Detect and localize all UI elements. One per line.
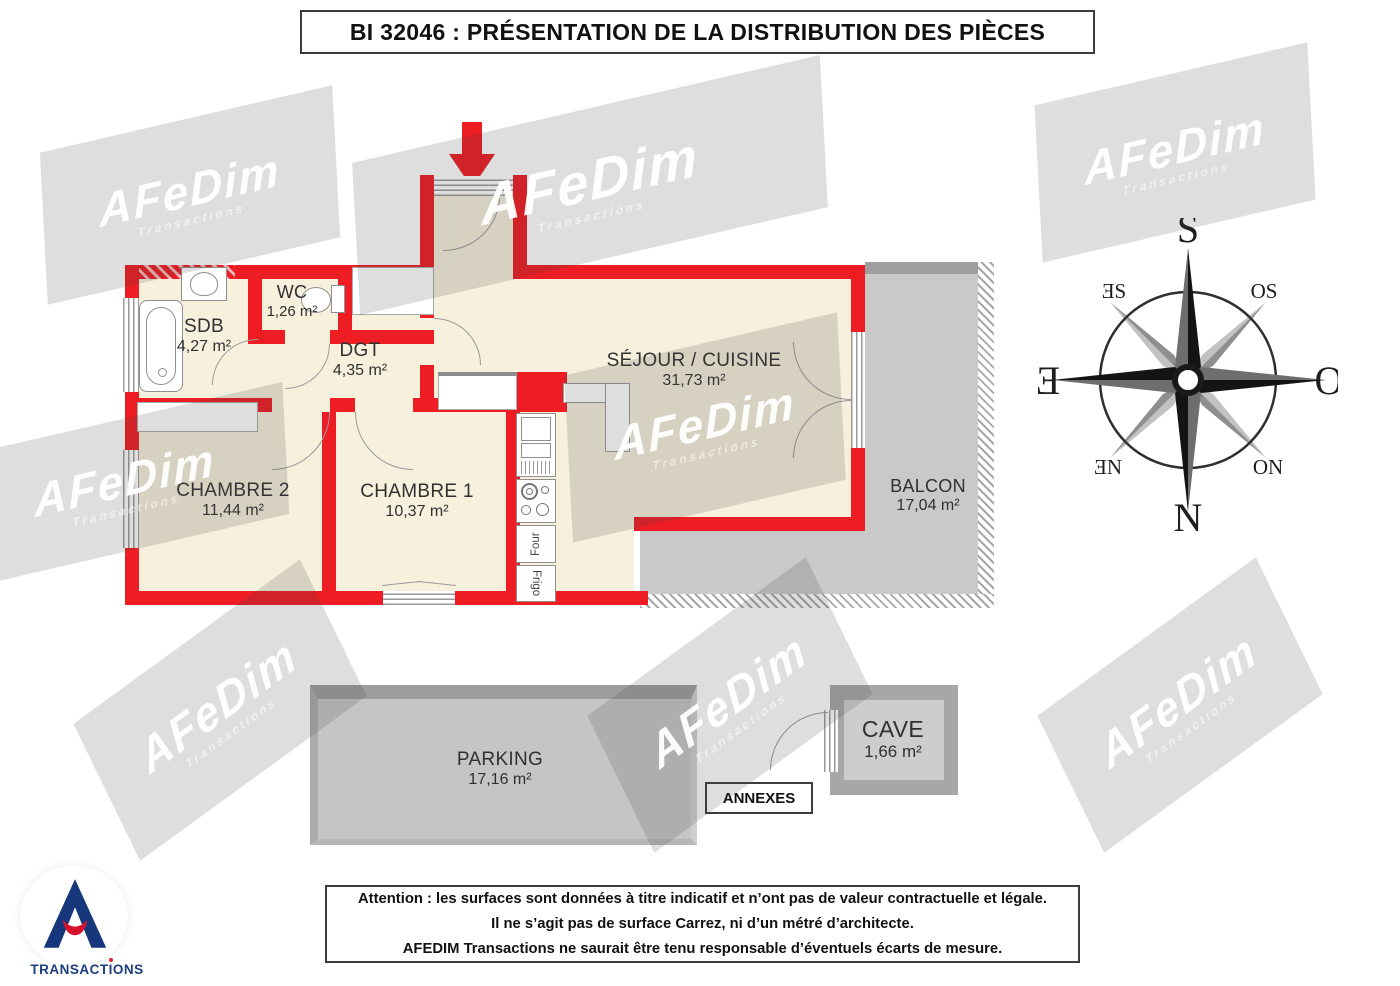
kitchen-drainer (521, 461, 551, 474)
room-label-parking: PARKING 17,16 m² (420, 749, 580, 789)
fridge-label: Frigo (517, 566, 555, 601)
window-chambre1 (383, 591, 455, 605)
kitchen-sink-basin (521, 417, 551, 441)
room-area: 1,26 m² (252, 303, 332, 320)
room-label-chambre1: CHAMBRE 1 10,37 m² (337, 481, 497, 521)
wall (851, 265, 865, 332)
balcony-top-edge (865, 262, 978, 274)
compass-rose: S N Ǝ O ƎS OS ƎN ON (1038, 218, 1338, 534)
annexes-label: ANNEXES (723, 790, 796, 807)
wall (322, 412, 336, 605)
door-arc-cave (770, 712, 828, 770)
watermark-brand: AFeDim (1083, 99, 1267, 196)
logo-text-part: ons (113, 962, 144, 977)
logo-wordmark: transactions (12, 962, 162, 977)
compass-e-label: Ǝ (1038, 358, 1060, 403)
balcony-door-threshold (851, 332, 865, 448)
sink-basin (190, 272, 218, 296)
compass-so-label: OS (1251, 279, 1278, 303)
room-name: SDB (144, 316, 264, 338)
watermark-sub: Transactions (1122, 158, 1230, 197)
compass-icon: S N Ǝ O ƎS OS ƎN ON (1038, 218, 1338, 534)
wall (330, 398, 355, 412)
floor-plan-page: BI 32046 : PRÉSENTATION DE LA DISTRIBUTI… (0, 0, 1400, 986)
room-name: WC (252, 282, 332, 303)
room-name: CHAMBRE 1 (337, 481, 497, 503)
logo-text-part: transact (30, 962, 108, 977)
room-label-cave: CAVE 1,66 m² (833, 716, 953, 762)
compass-n-label: N (1174, 495, 1203, 534)
room-area: 4,27 m² (144, 338, 264, 356)
watermark-sub: Transactions (183, 694, 279, 772)
watermark-sub: Transactions (137, 201, 245, 240)
apartment-floor-lower (139, 517, 634, 591)
room-label-chambre2: CHAMBRE 2 11,44 m² (153, 480, 313, 520)
closet (352, 267, 434, 315)
wall (634, 517, 865, 531)
disclaimer-line-1: Attention : les surfaces sont données à … (358, 887, 1047, 912)
watermark-brand: AFeDim (131, 626, 305, 785)
room-name: PARKING (420, 749, 580, 771)
room-area: 17,16 m² (420, 771, 580, 789)
room-name: CHAMBRE 2 (153, 480, 313, 502)
logo-text-i: i (109, 962, 113, 977)
disclaimer-box: Attention : les surfaces sont données à … (325, 885, 1080, 963)
burner-icon (536, 503, 549, 516)
room-label-wc: WC 1,26 m² (252, 282, 332, 320)
wardrobe (137, 402, 258, 432)
wall-kitchen-block (517, 372, 567, 412)
bathtub-drain (158, 368, 167, 377)
watermark-brand: AFeDim (1091, 621, 1265, 780)
compass-no-label: ON (1253, 455, 1283, 479)
compass-se-label: ƎS (1102, 279, 1127, 303)
wall (527, 265, 865, 279)
afedim-transactions-logo: transactions (12, 866, 162, 982)
watermark-brand: AFeDim (98, 142, 282, 239)
balcony-railing-right (978, 262, 994, 608)
burner-icon (541, 486, 549, 494)
kitchen-sink-basin (521, 443, 551, 458)
compass-o-label: O (1315, 358, 1338, 403)
burner-icon (521, 505, 531, 515)
compass-s-label: S (1177, 218, 1199, 251)
closet (438, 372, 517, 410)
room-name: SÉJOUR / CUISINE (594, 350, 794, 372)
balcony-area-horizontal (640, 531, 865, 594)
room-label-dgt: DGT 4,35 m² (300, 340, 420, 380)
balcony-area-vertical (865, 262, 978, 594)
room-area: 4,35 m² (300, 362, 420, 380)
page-title-text: BI 32046 : PRÉSENTATION DE LA DISTRIBUTI… (350, 19, 1045, 46)
disclaimer-line-3: AFEDIM Transactions ne saurait être tenu… (403, 937, 1002, 962)
compass-ne-label: ƎN (1094, 455, 1122, 479)
room-area: 10,37 m² (337, 503, 497, 521)
wall (513, 175, 527, 279)
watermark: AFeDim Transactions (1037, 557, 1322, 853)
disclaimer-line-2: Il ne s’agit pas de surface Carrez, ni d… (491, 912, 914, 937)
room-label-balcon: BALCON 17,04 m² (858, 476, 998, 515)
kitchen-counter (605, 383, 630, 452)
logo-a-icon (36, 872, 114, 958)
room-area: 31,73 m² (594, 372, 794, 390)
room-name: CAVE (833, 716, 953, 742)
room-label-sejour: SÉJOUR / CUISINE 31,73 m² (594, 350, 794, 390)
oven-label: Four (517, 526, 555, 562)
entry-door-threshold (434, 176, 513, 196)
watermark-sub: Transactions (1143, 689, 1239, 767)
room-area: 1,66 m² (833, 742, 953, 762)
window-sdb (123, 298, 139, 392)
entrance-arrow-shaft (462, 122, 482, 156)
room-name: DGT (300, 340, 420, 362)
room-label-sdb: SDB 4,27 m² (144, 316, 264, 356)
annexes-label-box: ANNEXES (705, 782, 813, 814)
balcony-railing-bottom (640, 594, 994, 608)
watermark-sub: Transactions (537, 196, 645, 235)
room-name: BALCON (858, 476, 998, 497)
page-title: BI 32046 : PRÉSENTATION DE LA DISTRIBUTI… (300, 10, 1095, 54)
toilet-tank (331, 285, 345, 313)
oven-box: Four (516, 525, 556, 563)
room-area: 17,04 m² (858, 497, 998, 515)
window-chambre2 (123, 450, 139, 548)
room-area: 11,44 m² (153, 502, 313, 520)
burner-icon (526, 488, 533, 495)
fridge-box: Frigo (516, 565, 556, 602)
